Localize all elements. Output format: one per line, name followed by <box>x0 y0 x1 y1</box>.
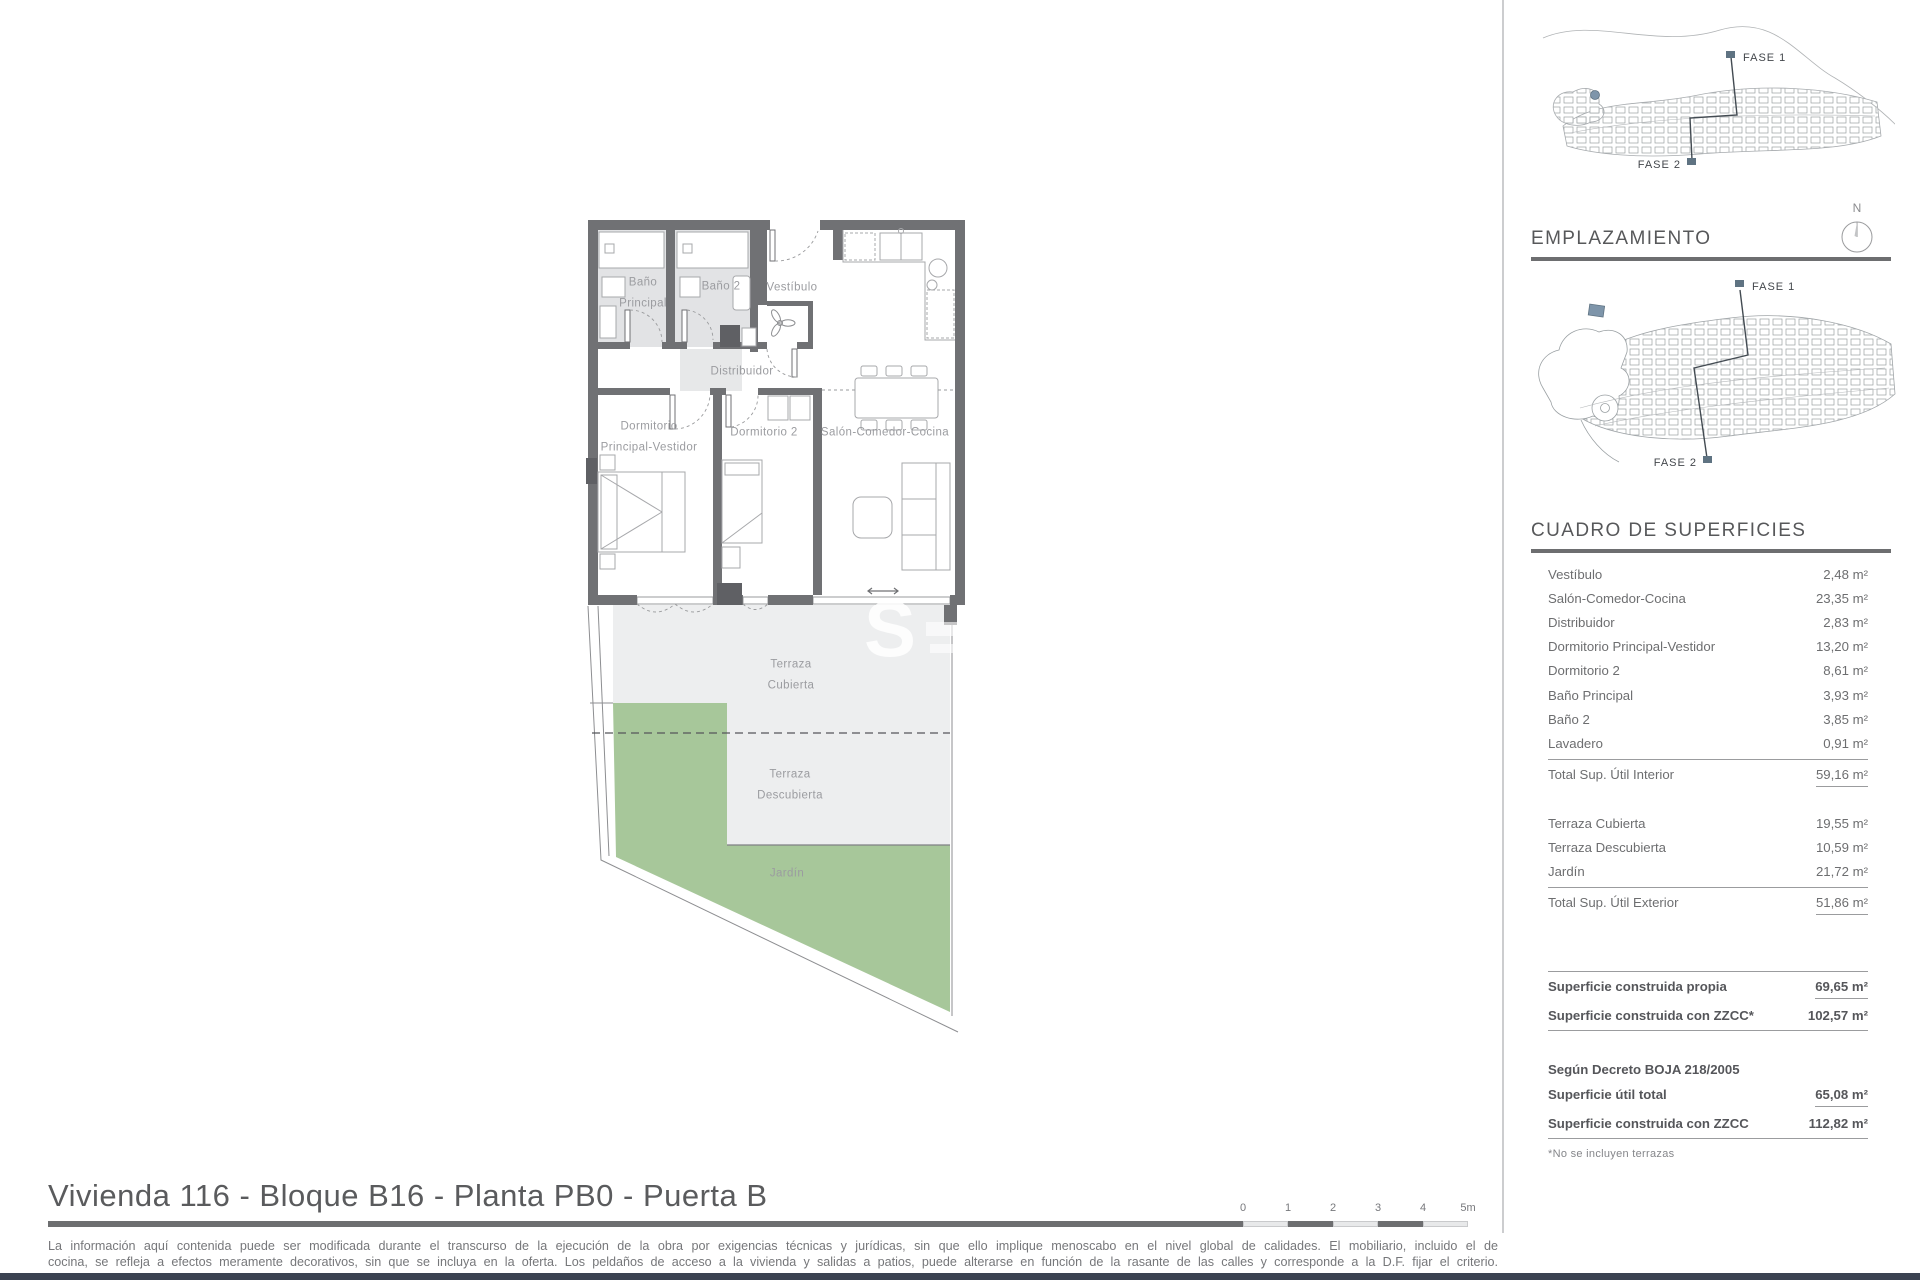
table-row: Dormitorio 28,61 m² <box>1548 659 1868 683</box>
spacer <box>1548 1031 1868 1057</box>
emplazamiento-title: EMPLAZAMIENTO <box>1531 228 1711 250</box>
compass-icon: N <box>1833 198 1881 260</box>
watermark-blur-bar <box>926 622 1042 636</box>
room-label-bano2: Baño 2 <box>702 276 741 297</box>
disclaimer-line-1: La información aquí contenida puede ser … <box>48 1238 1498 1254</box>
scalebar-labels: 0 1 2 3 4 5m <box>1243 1202 1468 1216</box>
right-panel: FASE 1 FASE 2 EMPLAZAMIENTO N FASE 1 FAS… <box>1531 0 1891 1280</box>
fan-icon <box>770 308 795 337</box>
kitchen <box>843 229 955 341</box>
scale-tick: 0 <box>1240 1202 1246 1214</box>
scale-tick: 1 <box>1285 1202 1291 1214</box>
table-row: Terraza Cubierta19,55 m² <box>1548 811 1868 835</box>
scale-tick: 4 <box>1420 1202 1426 1214</box>
fase2-marker <box>1703 456 1712 463</box>
table-row-util-total: Superficie útil total65,08 m² <box>1548 1082 1868 1111</box>
table-row-built-zzcc: Superficie construida con ZZCC*102,57 m² <box>1548 1004 1868 1032</box>
table-row-built-propia: Superficie construida propia69,65 m² <box>1548 971 1868 1004</box>
room-label-dormitorio2: Dormitorio 2 <box>730 422 797 443</box>
table-row: Jardín21,72 m² <box>1548 859 1868 883</box>
panel-divider <box>1502 0 1504 1233</box>
room-label-terraza-descubierta: Terraza Descubierta <box>757 765 823 808</box>
fase1-marker <box>1735 280 1744 287</box>
scale-tick: 3 <box>1375 1202 1381 1214</box>
room-label-jardin: Jardín <box>770 863 804 884</box>
spacer <box>1548 791 1868 811</box>
room-label-terraza-cubierta: Terraza Cubierta <box>768 655 815 698</box>
scale-tick: 2 <box>1330 1202 1336 1214</box>
fase1-marker <box>1726 51 1735 58</box>
room-label-dormitorio-principal: Dormitorio Principal-Vestidor <box>601 417 698 460</box>
scale-tick: 5m <box>1460 1202 1475 1214</box>
surfaces-rule <box>1531 549 1891 553</box>
table-row: Terraza Descubierta10,59 m² <box>1548 835 1868 859</box>
surfaces-title: CUADRO DE SUPERFICIES <box>1531 520 1806 542</box>
table-row-total-exterior: Total Sup. Útil Exterior51,86 m² <box>1548 887 1868 920</box>
page-title: Vivienda 116 - Bloque B16 - Planta PB0 -… <box>48 1178 768 1214</box>
table-row: Lavadero0,91 m² <box>1548 731 1868 755</box>
site-plan-emplazamiento: FASE 1 FASE 2 <box>1525 268 1905 483</box>
disclaimer: La información aquí contenida puede ser … <box>48 1238 1498 1270</box>
table-row: Distribuidor2,83 m² <box>1548 610 1868 634</box>
table-row: Dormitorio Principal-Vestidor13,20 m² <box>1548 635 1868 659</box>
table-row-construida-zzcc: Superficie construida con ZZCC112,82 m² <box>1548 1112 1868 1140</box>
watermark-blur-bar <box>930 644 1010 653</box>
title-rule <box>48 1221 1243 1227</box>
fase2-marker <box>1687 158 1696 165</box>
subject-block-marker <box>1588 304 1604 317</box>
table-footnote: *No se incluyen terrazas <box>1548 1148 1868 1160</box>
site-plan-aerial: FASE 1 FASE 2 <box>1537 6 1895 178</box>
table-row: Baño 23,85 m² <box>1548 707 1868 731</box>
subject-location-dot <box>1591 91 1600 100</box>
table-row: Salón-Comedor-Cocina23,35 m² <box>1548 586 1868 610</box>
room-label-distribuidor: Distribuidor <box>711 361 774 382</box>
fase1-label: FASE 1 <box>1743 52 1786 64</box>
table-row: Baño Principal3,93 m² <box>1548 683 1868 707</box>
fase1-label: FASE 1 <box>1752 281 1795 293</box>
table-row-total-interior: Total Sup. Útil Interior59,16 m² <box>1548 759 1868 792</box>
room-label-salon: Salón-Comedor-Cocina <box>821 422 949 443</box>
furniture <box>598 366 950 570</box>
bottom-border <box>0 1273 1920 1280</box>
room-label-bano-principal: Baño Principal <box>619 273 667 316</box>
table-row: Vestíbulo2,48 m² <box>1548 562 1868 586</box>
fase2-label: FASE 2 <box>1654 457 1697 469</box>
watermark: S <box>864 598 1084 668</box>
svg-text:N: N <box>1853 201 1862 215</box>
surfaces-table: Vestíbulo2,48 m² Salón-Comedor-Cocina23,… <box>1548 562 1868 1160</box>
disclaimer-line-2: cocina, se refleja a efectos meramente d… <box>48 1254 1498 1270</box>
scale-bar <box>1243 1221 1468 1227</box>
spacer <box>1548 919 1868 969</box>
decree-heading: Según Decreto BOJA 218/2005 <box>1548 1057 1868 1082</box>
room-label-vestibulo: Vestíbulo <box>767 277 818 298</box>
fase2-label: FASE 2 <box>1638 159 1681 171</box>
